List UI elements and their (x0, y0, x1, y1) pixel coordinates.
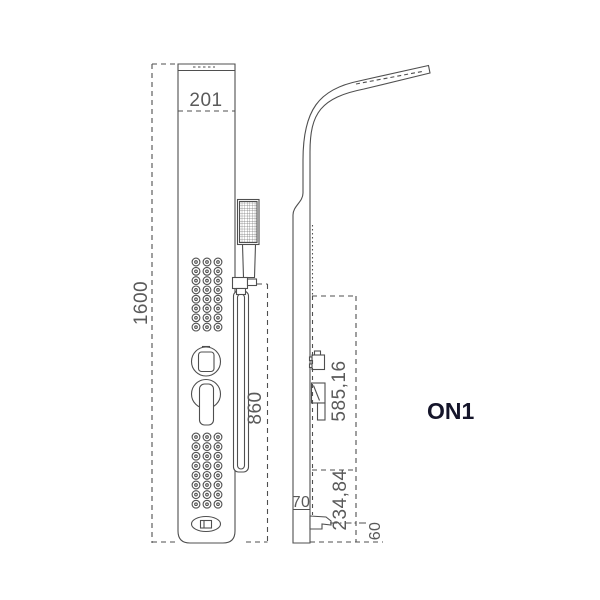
jet-nozzle (203, 462, 211, 470)
jet-nozzle (192, 305, 200, 313)
jet-nozzle (203, 267, 211, 275)
jet-nozzle (192, 277, 200, 285)
width-dim-label: 201 (189, 90, 222, 111)
jet-nozzle (214, 491, 222, 499)
shower-holder (233, 278, 248, 289)
jet-nozzle (192, 443, 200, 451)
jet-nozzle (214, 462, 222, 470)
jet-nozzle (192, 286, 200, 294)
spout-side-profile (310, 516, 331, 529)
model-label: ON1 (427, 398, 475, 424)
jet-nozzle (214, 433, 222, 441)
jet-nozzle (214, 481, 222, 489)
jet-nozzle (203, 258, 211, 266)
side-view (293, 66, 430, 544)
shower-holder-base (237, 289, 246, 295)
jet-nozzle (203, 433, 211, 441)
height-dim-label: 1600 (131, 281, 152, 325)
shower-panel-drawing: 201 1600 860 585,16 234,84 70 60 ON1 (0, 0, 600, 600)
jet-nozzle (203, 472, 211, 480)
knob-side-profile-lower (312, 383, 326, 420)
jet-nozzle (214, 267, 222, 275)
knob-side-profile-upper (310, 351, 325, 370)
jet-nozzle (214, 286, 222, 294)
jet-nozzle (192, 295, 200, 303)
jet-nozzle (192, 481, 200, 489)
side-profile (293, 66, 430, 544)
jet-nozzle (203, 286, 211, 294)
jet-nozzle (192, 500, 200, 508)
jet-nozzle (203, 323, 211, 331)
shower-holder-clamp (248, 279, 257, 286)
rail-dim-label: 860 (245, 391, 266, 424)
jet-nozzle (203, 443, 211, 451)
jet-nozzle (214, 443, 222, 451)
spout-offset-dim-label: 60 (367, 522, 384, 540)
jet-nozzle (214, 277, 222, 285)
front-view (152, 64, 268, 543)
jet-nozzle (203, 295, 211, 303)
depth-dim-label: 70 (292, 494, 310, 511)
jet-nozzle (203, 277, 211, 285)
jet-nozzle (214, 500, 222, 508)
jet-nozzle (192, 491, 200, 499)
upper-section-dim-label: 585,16 (329, 360, 350, 421)
hand-shower-handle (243, 245, 256, 278)
diverter-knob (192, 347, 221, 377)
jet-nozzle (192, 267, 200, 275)
hand-shower-face-mesh (240, 202, 258, 243)
jet-nozzle (192, 314, 200, 322)
jet-nozzle (203, 314, 211, 322)
jet-nozzle (192, 258, 200, 266)
jet-nozzle (192, 452, 200, 460)
lower-section-dim-label: 234,84 (330, 469, 351, 530)
jet-nozzle (203, 500, 211, 508)
height-dim-lines (152, 64, 178, 543)
jet-nozzle (214, 305, 222, 313)
jet-nozzle (214, 314, 222, 322)
jet-nozzle (192, 472, 200, 480)
slide-rail-inner (238, 294, 245, 469)
jet-nozzle (203, 491, 211, 499)
jet-nozzle (203, 481, 211, 489)
jet-nozzle (214, 295, 222, 303)
technical-drawing-page: 201 1600 860 585,16 234,84 70 60 ON1 (0, 0, 600, 600)
hand-shower (233, 200, 260, 473)
jet-nozzle (192, 462, 200, 470)
jet-nozzle (203, 305, 211, 313)
jet-nozzle (192, 323, 200, 331)
jet-nozzle (214, 323, 222, 331)
jet-nozzle (214, 472, 222, 480)
jet-nozzle (192, 433, 200, 441)
jet-nozzle (214, 452, 222, 460)
jet-nozzle (203, 452, 211, 460)
jet-nozzle (214, 258, 222, 266)
spout-oval (192, 517, 221, 532)
